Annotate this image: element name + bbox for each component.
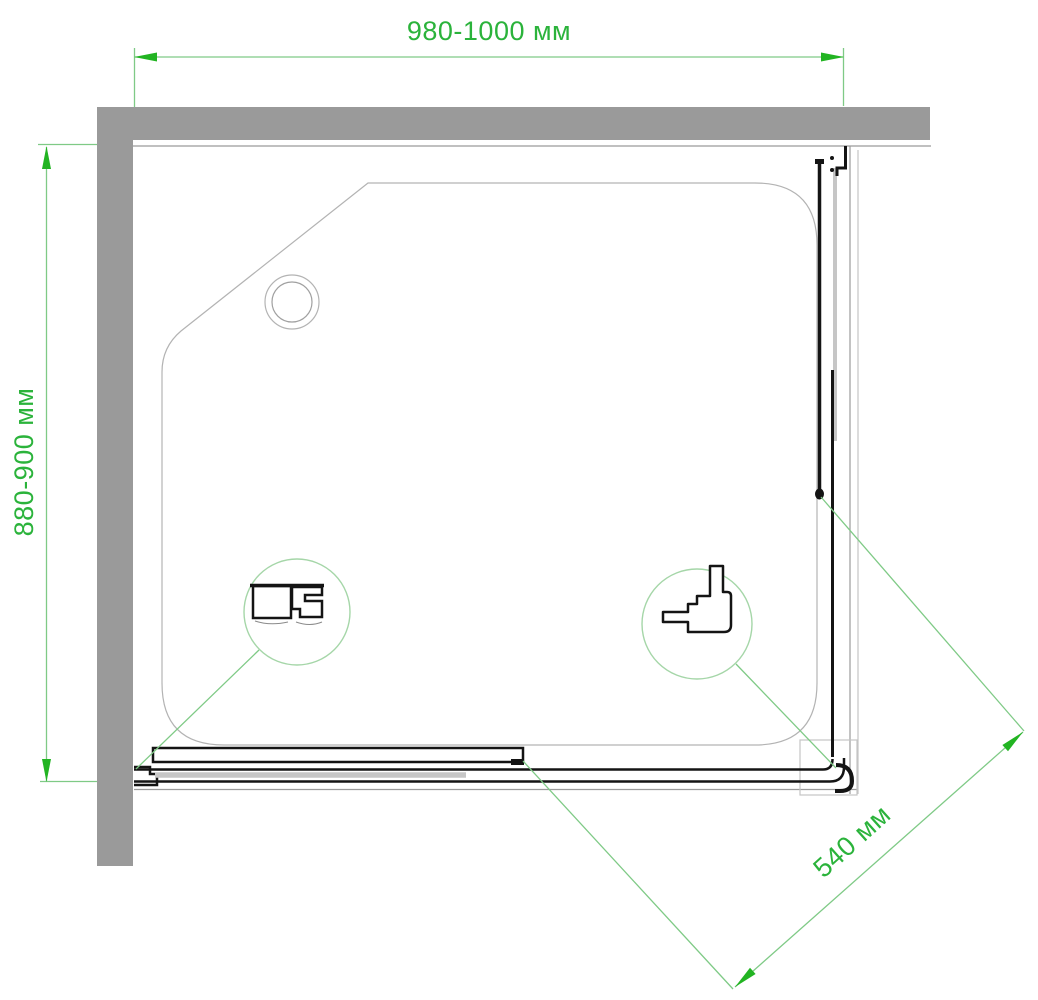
arrow-down-icon bbox=[42, 759, 51, 782]
door-leader-right bbox=[821, 497, 1024, 731]
profile-screw-icon bbox=[830, 156, 834, 160]
profile-screw-icon bbox=[830, 168, 834, 172]
shower-enclosure-diagram: 980-1000 мм 880-900 мм 540 мм bbox=[0, 0, 1038, 1000]
dimension-lines bbox=[38, 48, 1024, 989]
arrow-left-icon bbox=[134, 53, 157, 62]
frame-outline bbox=[133, 146, 931, 795]
right-panel-assembly bbox=[815, 146, 846, 757]
bottom-panel-assembly bbox=[134, 748, 830, 785]
drain-icon bbox=[265, 275, 319, 329]
bottom-door-hook bbox=[511, 759, 524, 765]
bottom-door-panel bbox=[153, 748, 523, 762]
depth-dimension-label: 880-900 мм bbox=[9, 388, 39, 537]
arrow-diag-upper-icon bbox=[1002, 732, 1023, 751]
door-leader-bottom bbox=[523, 761, 733, 989]
corner-inner-arc bbox=[823, 759, 833, 770]
callout-leader-right bbox=[736, 664, 836, 768]
drain-inner-icon bbox=[272, 282, 312, 322]
detail-callouts bbox=[244, 559, 752, 679]
right-door-handle-icon bbox=[815, 489, 824, 500]
dimension-arrows bbox=[42, 53, 1023, 988]
arrow-right-icon bbox=[821, 53, 844, 62]
top-wall bbox=[97, 107, 930, 140]
width-dimension-label: 980-1000 мм bbox=[407, 16, 571, 46]
corner-connector bbox=[823, 758, 852, 791]
left-wall bbox=[97, 107, 133, 866]
right-wall-profile bbox=[837, 146, 846, 176]
arrow-up-icon bbox=[42, 146, 51, 169]
drawing-canvas: 980-1000 мм 880-900 мм 540 мм bbox=[0, 0, 1038, 1000]
door-dimension-label: 540 мм bbox=[808, 799, 897, 883]
arrow-diag-lower-icon bbox=[735, 968, 756, 987]
